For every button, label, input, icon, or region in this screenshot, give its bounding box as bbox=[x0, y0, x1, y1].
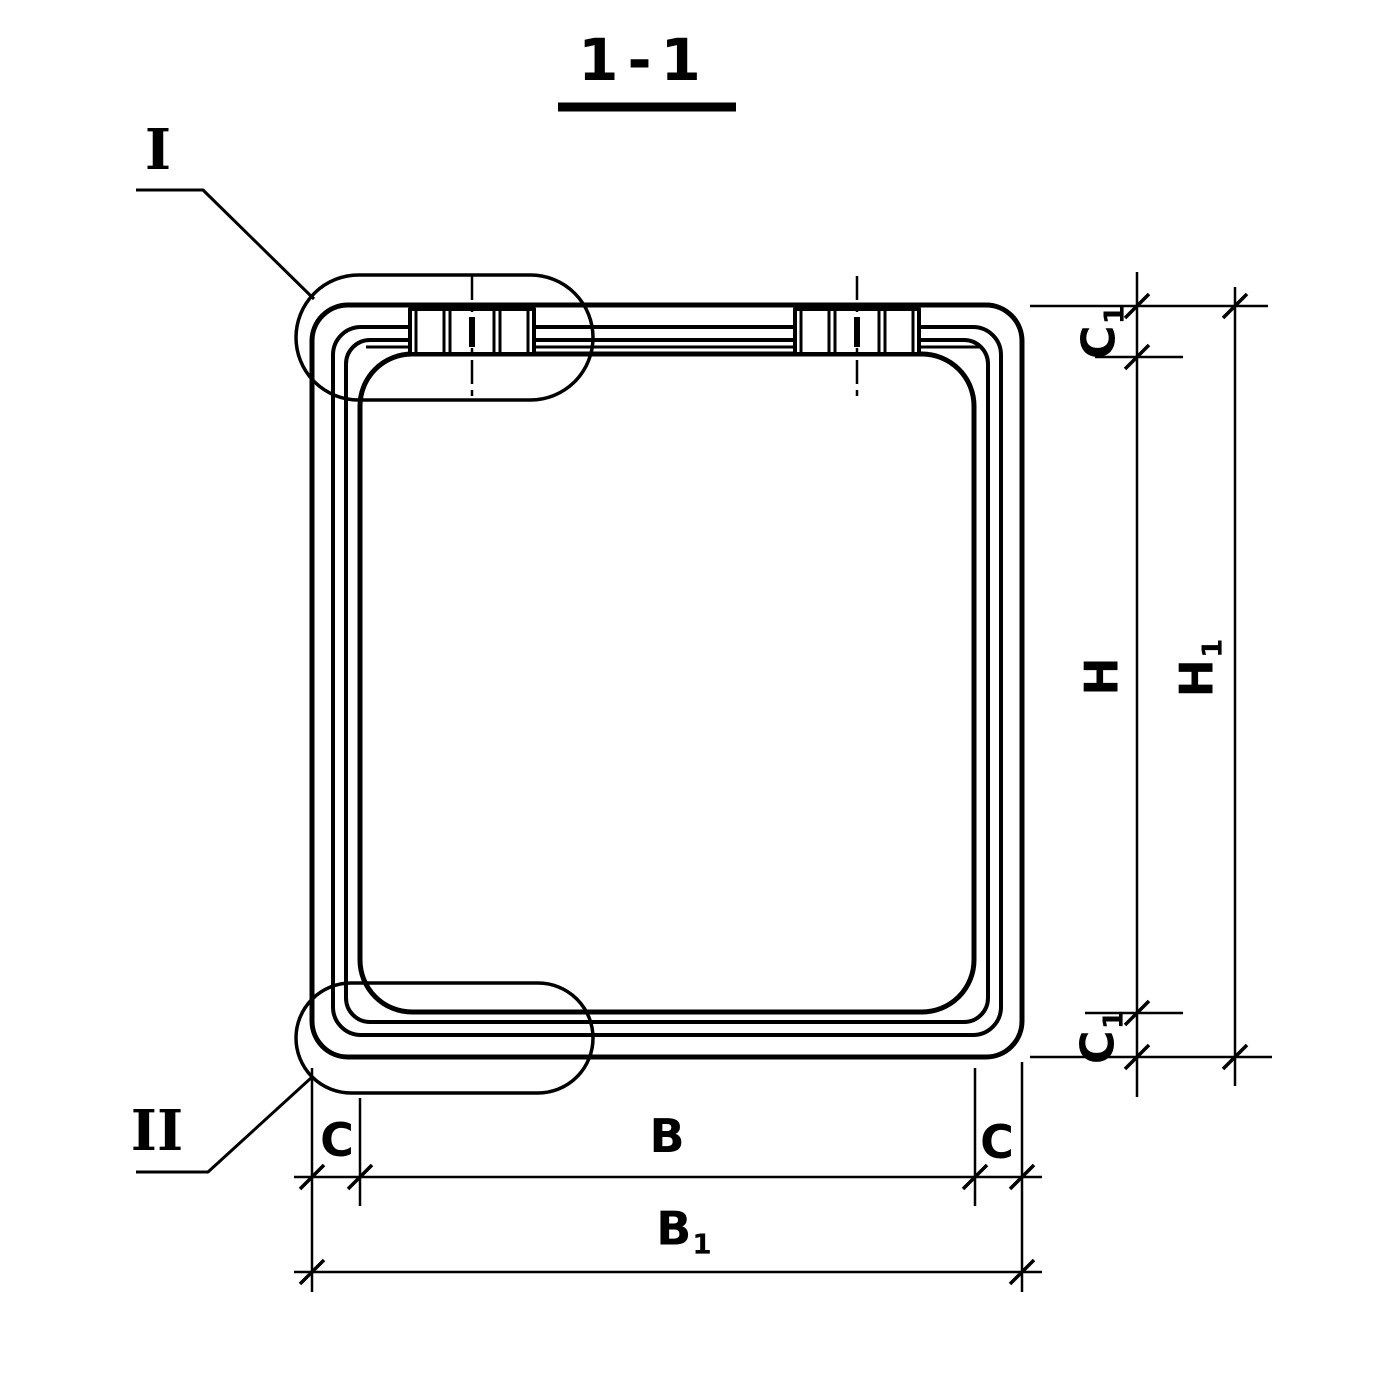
reinforcement-line-outer bbox=[333, 327, 1001, 1035]
joint-key-left bbox=[409, 276, 535, 400]
dim-label-h: H bbox=[1079, 656, 1132, 696]
dim-label-b: B bbox=[649, 1113, 684, 1159]
dim-label-c-right: C bbox=[980, 1119, 1014, 1165]
technical-drawing-canvas: 1-1 I II C1 H H1 C1 C B C B1 bbox=[0, 0, 1374, 1379]
detail-circle-II bbox=[296, 983, 593, 1093]
section-drawing bbox=[0, 0, 1374, 1379]
detail-label-I-text: I bbox=[145, 117, 171, 183]
dim-label-h1: H1 bbox=[1174, 639, 1227, 698]
detail-label-II-text: II bbox=[131, 1098, 183, 1164]
section-title-text: 1-1 bbox=[578, 26, 710, 94]
dim-label-c1-bottom: C1 bbox=[1075, 1010, 1128, 1064]
dim-label-c1-top: C1 bbox=[1076, 305, 1129, 359]
detail-label-I: I bbox=[145, 122, 171, 178]
dimension-lines-right bbox=[1030, 272, 1272, 1097]
joint-key-right bbox=[794, 276, 920, 400]
reinforcement-line-inner bbox=[346, 340, 988, 1022]
section-title: 1-1 bbox=[578, 31, 710, 89]
leader-line-I bbox=[136, 190, 314, 299]
dim-label-b1: B1 bbox=[656, 1206, 712, 1259]
detail-label-II: II bbox=[131, 1103, 183, 1159]
dim-label-c-left: C bbox=[320, 1117, 354, 1163]
section-outline bbox=[312, 305, 1022, 1057]
inner-face-outline bbox=[360, 354, 974, 1012]
